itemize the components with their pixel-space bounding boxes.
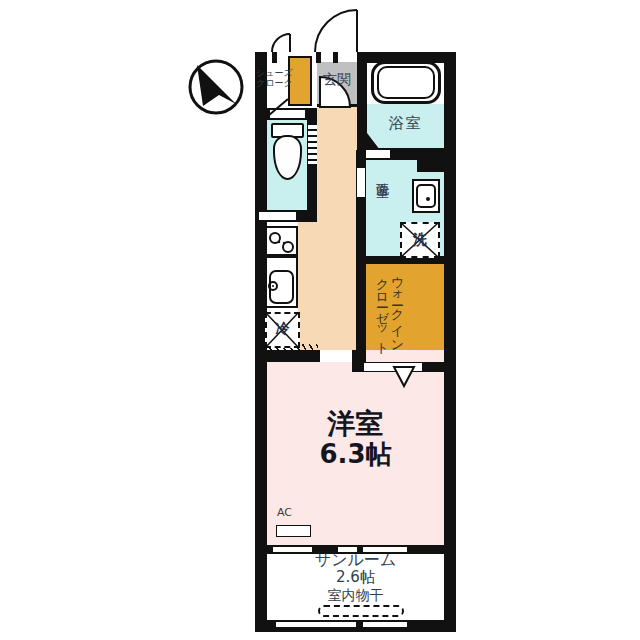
wic-label-line1: ウォークイン — [390, 267, 405, 347]
hall-corridor — [317, 105, 357, 352]
sunroom-label: サンルーム 2.6帖 室内物干 — [267, 551, 444, 603]
shoes-closet-label-line2: クローク — [256, 78, 296, 88]
wic-label-line2: クローゼット — [375, 269, 390, 349]
bathtub-inner — [377, 66, 435, 99]
washroom-door-slot — [357, 168, 365, 197]
entrance-step-line — [317, 104, 357, 107]
entrance-door-arc-icon — [315, 10, 357, 52]
kitchen-sink-icon — [269, 270, 294, 304]
washer-space-label: 洗 — [400, 231, 440, 247]
wall-entrance-bath — [357, 52, 367, 160]
washbasin-inner — [416, 184, 436, 208]
bottom-window-slot — [276, 622, 407, 627]
floor-plan: 玄関 シューズ クローク 浴室 洗面室 洗 ウォークイン クローゼット 冷 洋室… — [0, 0, 640, 640]
accordion-door-icon — [308, 123, 317, 164]
toilet-bottom-door-slot — [259, 212, 296, 220]
ac-label: AC — [277, 507, 292, 520]
entrance-label: 玄関 — [317, 71, 357, 87]
western-room-size: 6.3帖 — [267, 440, 444, 470]
refrigerator-label: 冷 — [265, 320, 300, 336]
sunroom-note: 室内物干 — [267, 587, 444, 603]
sunroom-size: 2.6帖 — [267, 569, 444, 586]
bathroom-label: 浴室 — [367, 115, 444, 132]
bottom-window-tick — [356, 620, 363, 632]
doorframe-tick — [333, 52, 338, 63]
ac-unit-box — [276, 525, 311, 537]
doorframe-tick — [316, 52, 321, 63]
doorframe-tick — [272, 52, 277, 63]
walk-in-closet-label: ウォークイン クローゼット — [374, 267, 404, 361]
small-door-arc-icon — [272, 34, 290, 52]
hall-kitchen-strip — [298, 222, 317, 352]
room-doorway-slot — [320, 350, 352, 362]
bath-door-slot — [366, 150, 390, 158]
washroom-label: 洗面室 — [374, 172, 389, 236]
laundry-pole-box — [318, 605, 404, 617]
gas-stove-icon — [265, 226, 298, 256]
wall-washroom-step — [417, 158, 444, 172]
western-room-name: 洋室 — [267, 408, 444, 440]
toilet-top-door-slot — [270, 110, 305, 118]
shoes-closet-label: シューズ クローク — [256, 68, 296, 89]
western-room-label: 洋室 6.3帖 — [267, 408, 444, 470]
sunroom-name: サンルーム — [267, 551, 444, 569]
north-arrow-icon — [190, 61, 242, 113]
closet-door-slot — [364, 363, 422, 371]
wall-hall-room — [255, 350, 320, 362]
shoes-closet-label-line1: シューズ — [256, 68, 296, 78]
